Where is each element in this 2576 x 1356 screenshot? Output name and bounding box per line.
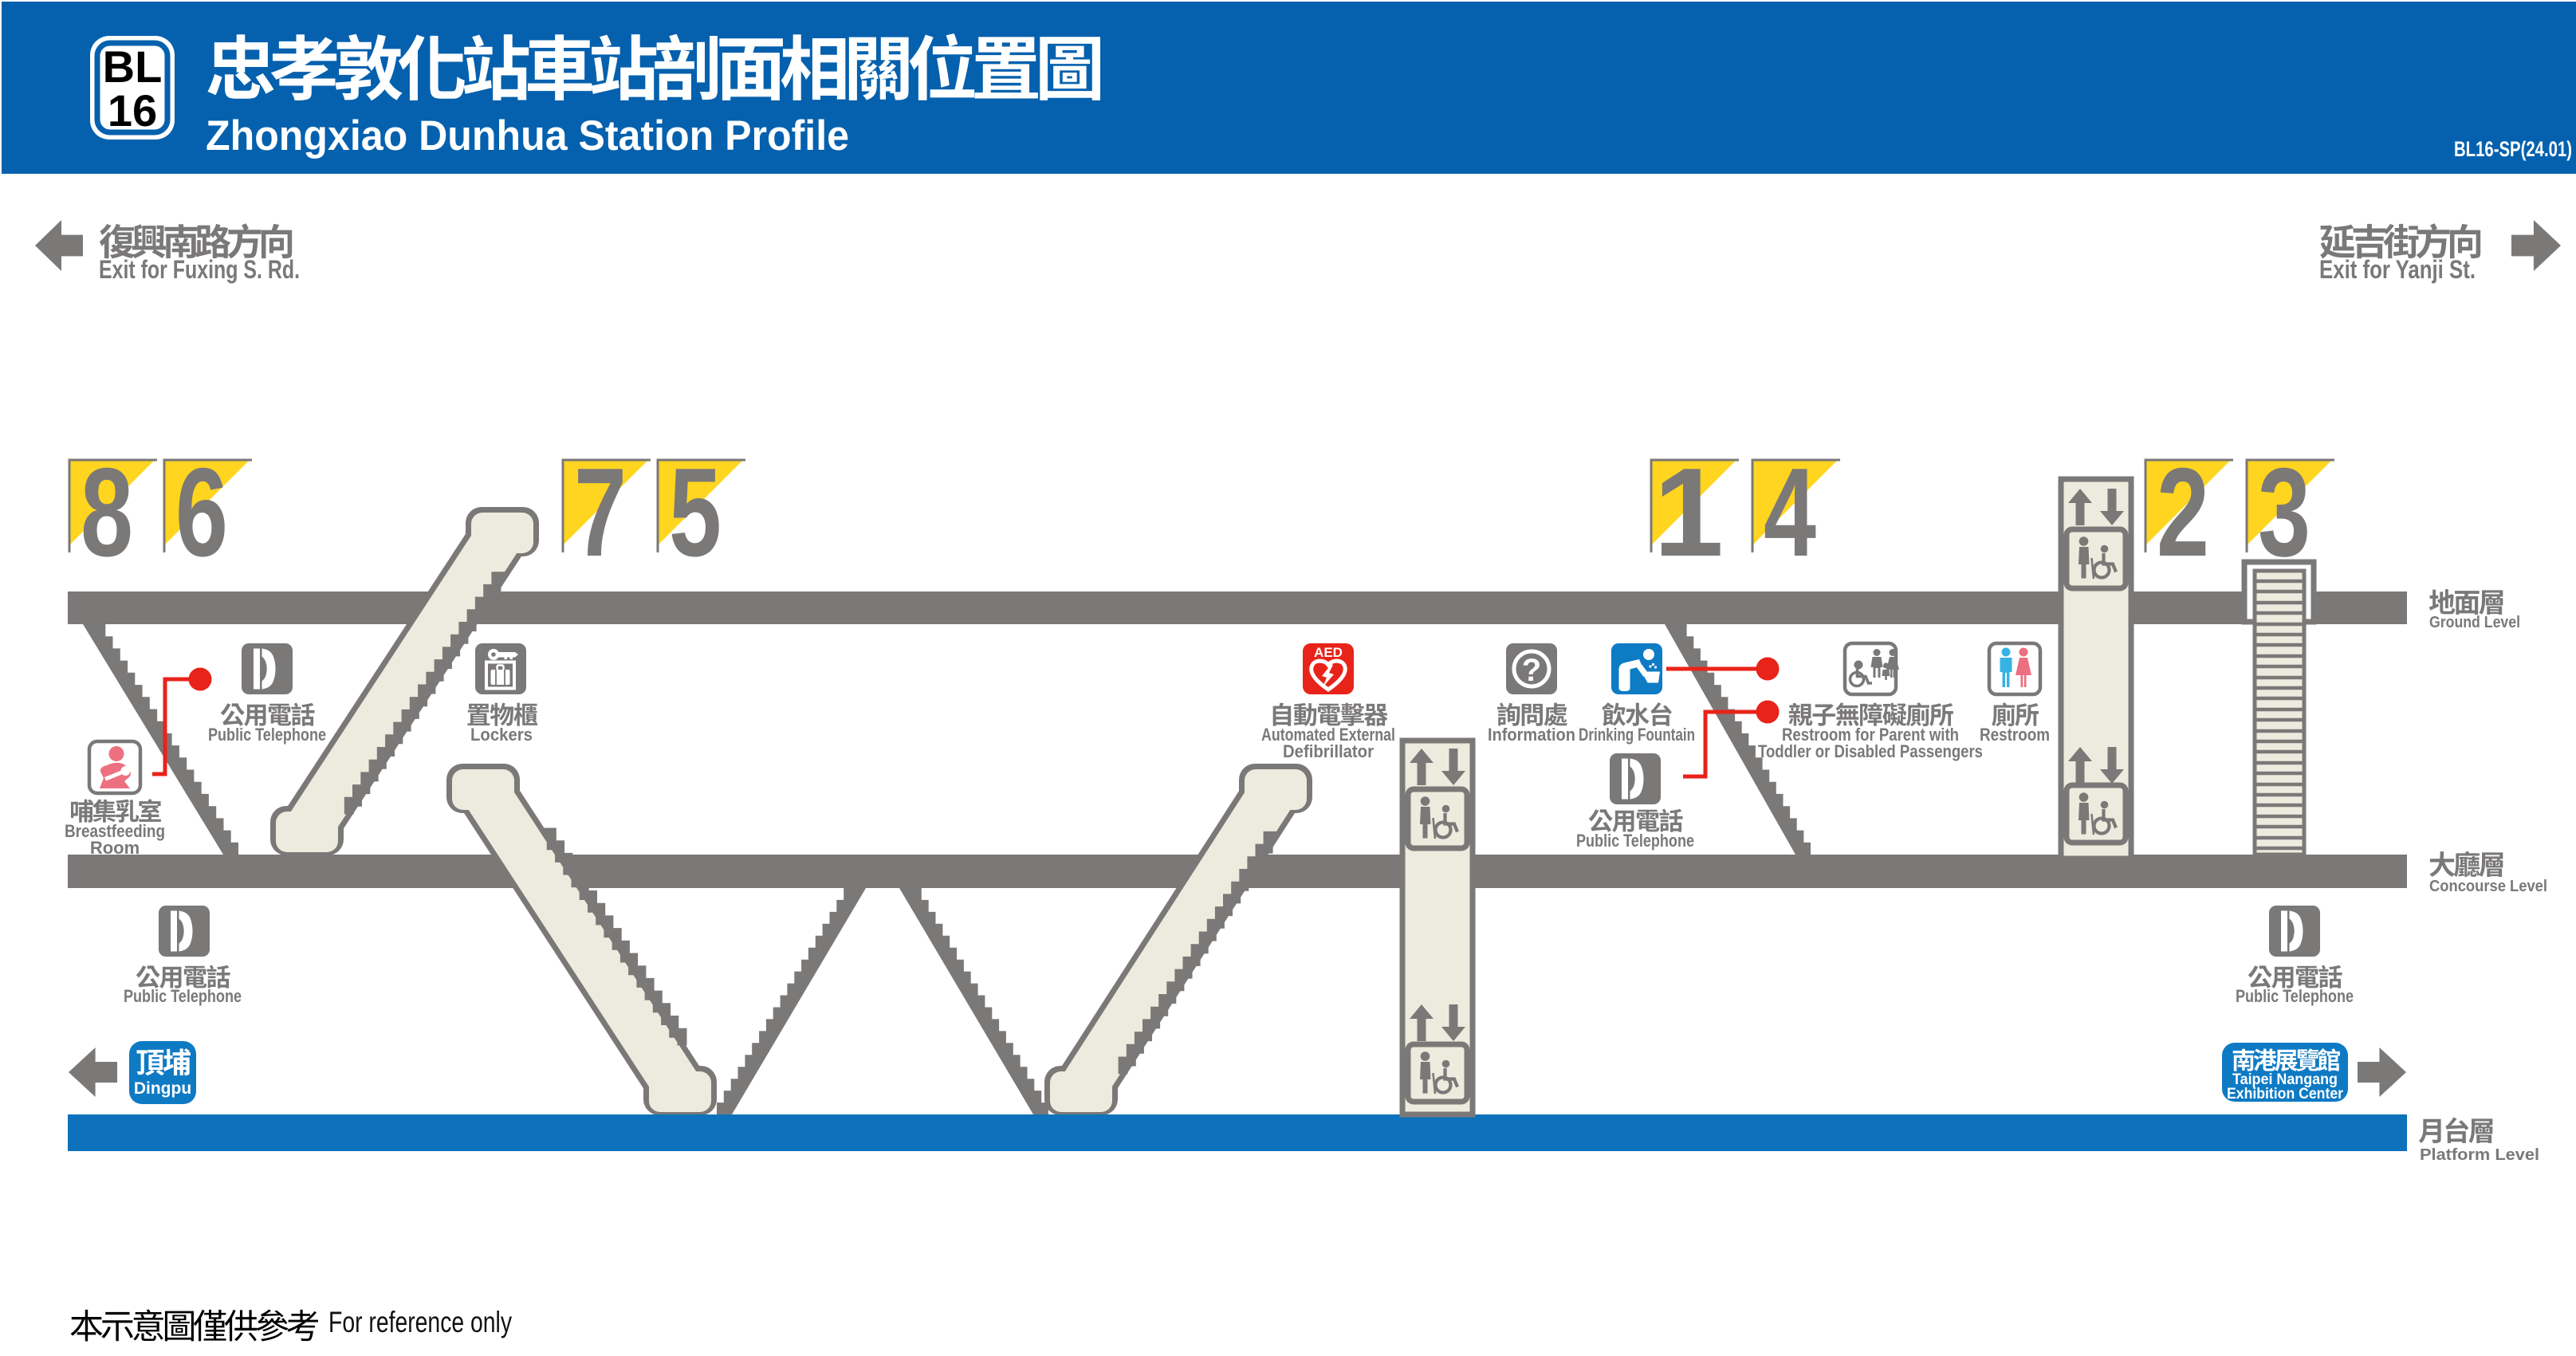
svg-text:16: 16: [108, 85, 157, 136]
svg-text:Ground Level: Ground Level: [2429, 614, 2520, 631]
svg-text:Dingpu: Dingpu: [134, 1079, 191, 1098]
svg-text:Lockers: Lockers: [470, 725, 533, 745]
svg-text:Concourse Level: Concourse Level: [2429, 878, 2547, 895]
svg-text:?: ?: [1522, 653, 1541, 688]
svg-text:Defibrillator: Defibrillator: [1283, 741, 1374, 761]
svg-text:BL: BL: [103, 41, 163, 92]
svg-text:Platform Level: Platform Level: [2420, 1146, 2539, 1164]
svg-text:BL16-SP(24.01): BL16-SP(24.01): [2454, 137, 2572, 161]
svg-text:7: 7: [574, 442, 627, 583]
svg-text:Exit for Yanji St.: Exit for Yanji St.: [2319, 255, 2476, 284]
svg-text:Public Telephone: Public Telephone: [1576, 831, 1694, 851]
svg-text:Exhibition Center: Exhibition Center: [2227, 1086, 2344, 1102]
svg-text:3: 3: [2258, 442, 2311, 583]
svg-text:Room: Room: [90, 838, 140, 858]
svg-text:Public Telephone: Public Telephone: [124, 986, 242, 1006]
svg-text:Zhongxiao Dunhua Station Profi: Zhongxiao Dunhua Station Profile: [206, 112, 849, 159]
svg-text:Information: Information: [1488, 725, 1575, 745]
svg-text:For reference only: For reference only: [328, 1306, 512, 1338]
svg-text:Toddler or Disabled Passengers: Toddler or Disabled Passengers: [1758, 741, 1983, 761]
svg-text:5: 5: [669, 442, 722, 583]
svg-text:Restroom: Restroom: [1980, 725, 2050, 745]
svg-text:Drinking Fountain: Drinking Fountain: [1579, 725, 1695, 745]
svg-text:AED: AED: [1314, 645, 1343, 660]
svg-text:2: 2: [2157, 442, 2209, 583]
svg-text:4: 4: [1764, 442, 1816, 583]
svg-text:1: 1: [1654, 442, 1724, 583]
svg-text:Public Telephone: Public Telephone: [2236, 986, 2354, 1006]
svg-text:Exit for Fuxing S. Rd.: Exit for Fuxing S. Rd.: [99, 255, 300, 284]
svg-text:6: 6: [175, 442, 228, 583]
svg-text:Public Telephone: Public Telephone: [208, 725, 326, 745]
svg-text:8: 8: [81, 442, 133, 583]
